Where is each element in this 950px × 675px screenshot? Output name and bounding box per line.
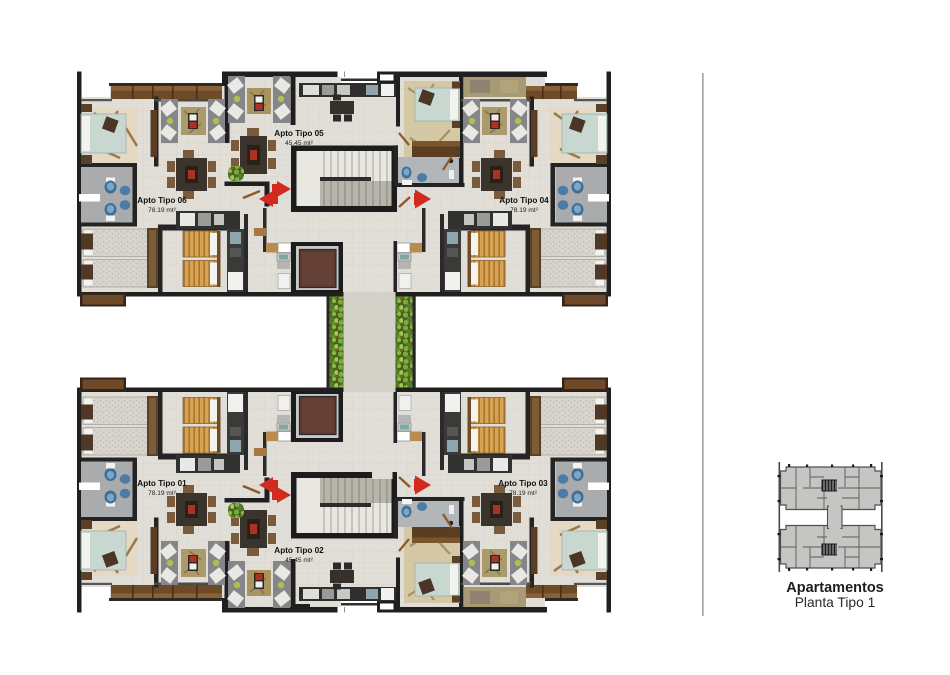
svg-text:Apto Tipo 01: Apto Tipo 01 (137, 479, 187, 488)
svg-text:45.45 mt²: 45.45 mt² (285, 557, 314, 564)
svg-text:Planta Tipo 1: Planta Tipo 1 (795, 595, 876, 610)
svg-text:78.19 mt²: 78.19 mt² (148, 207, 177, 214)
svg-text:78.19 mt²: 78.19 mt² (509, 490, 538, 497)
svg-text:Apto Tipo 05: Apto Tipo 05 (274, 129, 324, 138)
svg-text:78.19 mt²: 78.19 mt² (510, 207, 539, 214)
svg-text:Apto Tipo 04: Apto Tipo 04 (499, 196, 549, 205)
svg-text:Apto Tipo 02: Apto Tipo 02 (274, 546, 324, 555)
svg-text:78.19 mt²: 78.19 mt² (148, 490, 177, 497)
svg-text:Apto Tipo 03: Apto Tipo 03 (498, 479, 548, 488)
svg-text:45.45 mt²: 45.45 mt² (285, 140, 314, 147)
svg-text:Apto Tipo 06: Apto Tipo 06 (137, 196, 187, 205)
svg-text:Apartamentos: Apartamentos (786, 580, 884, 596)
